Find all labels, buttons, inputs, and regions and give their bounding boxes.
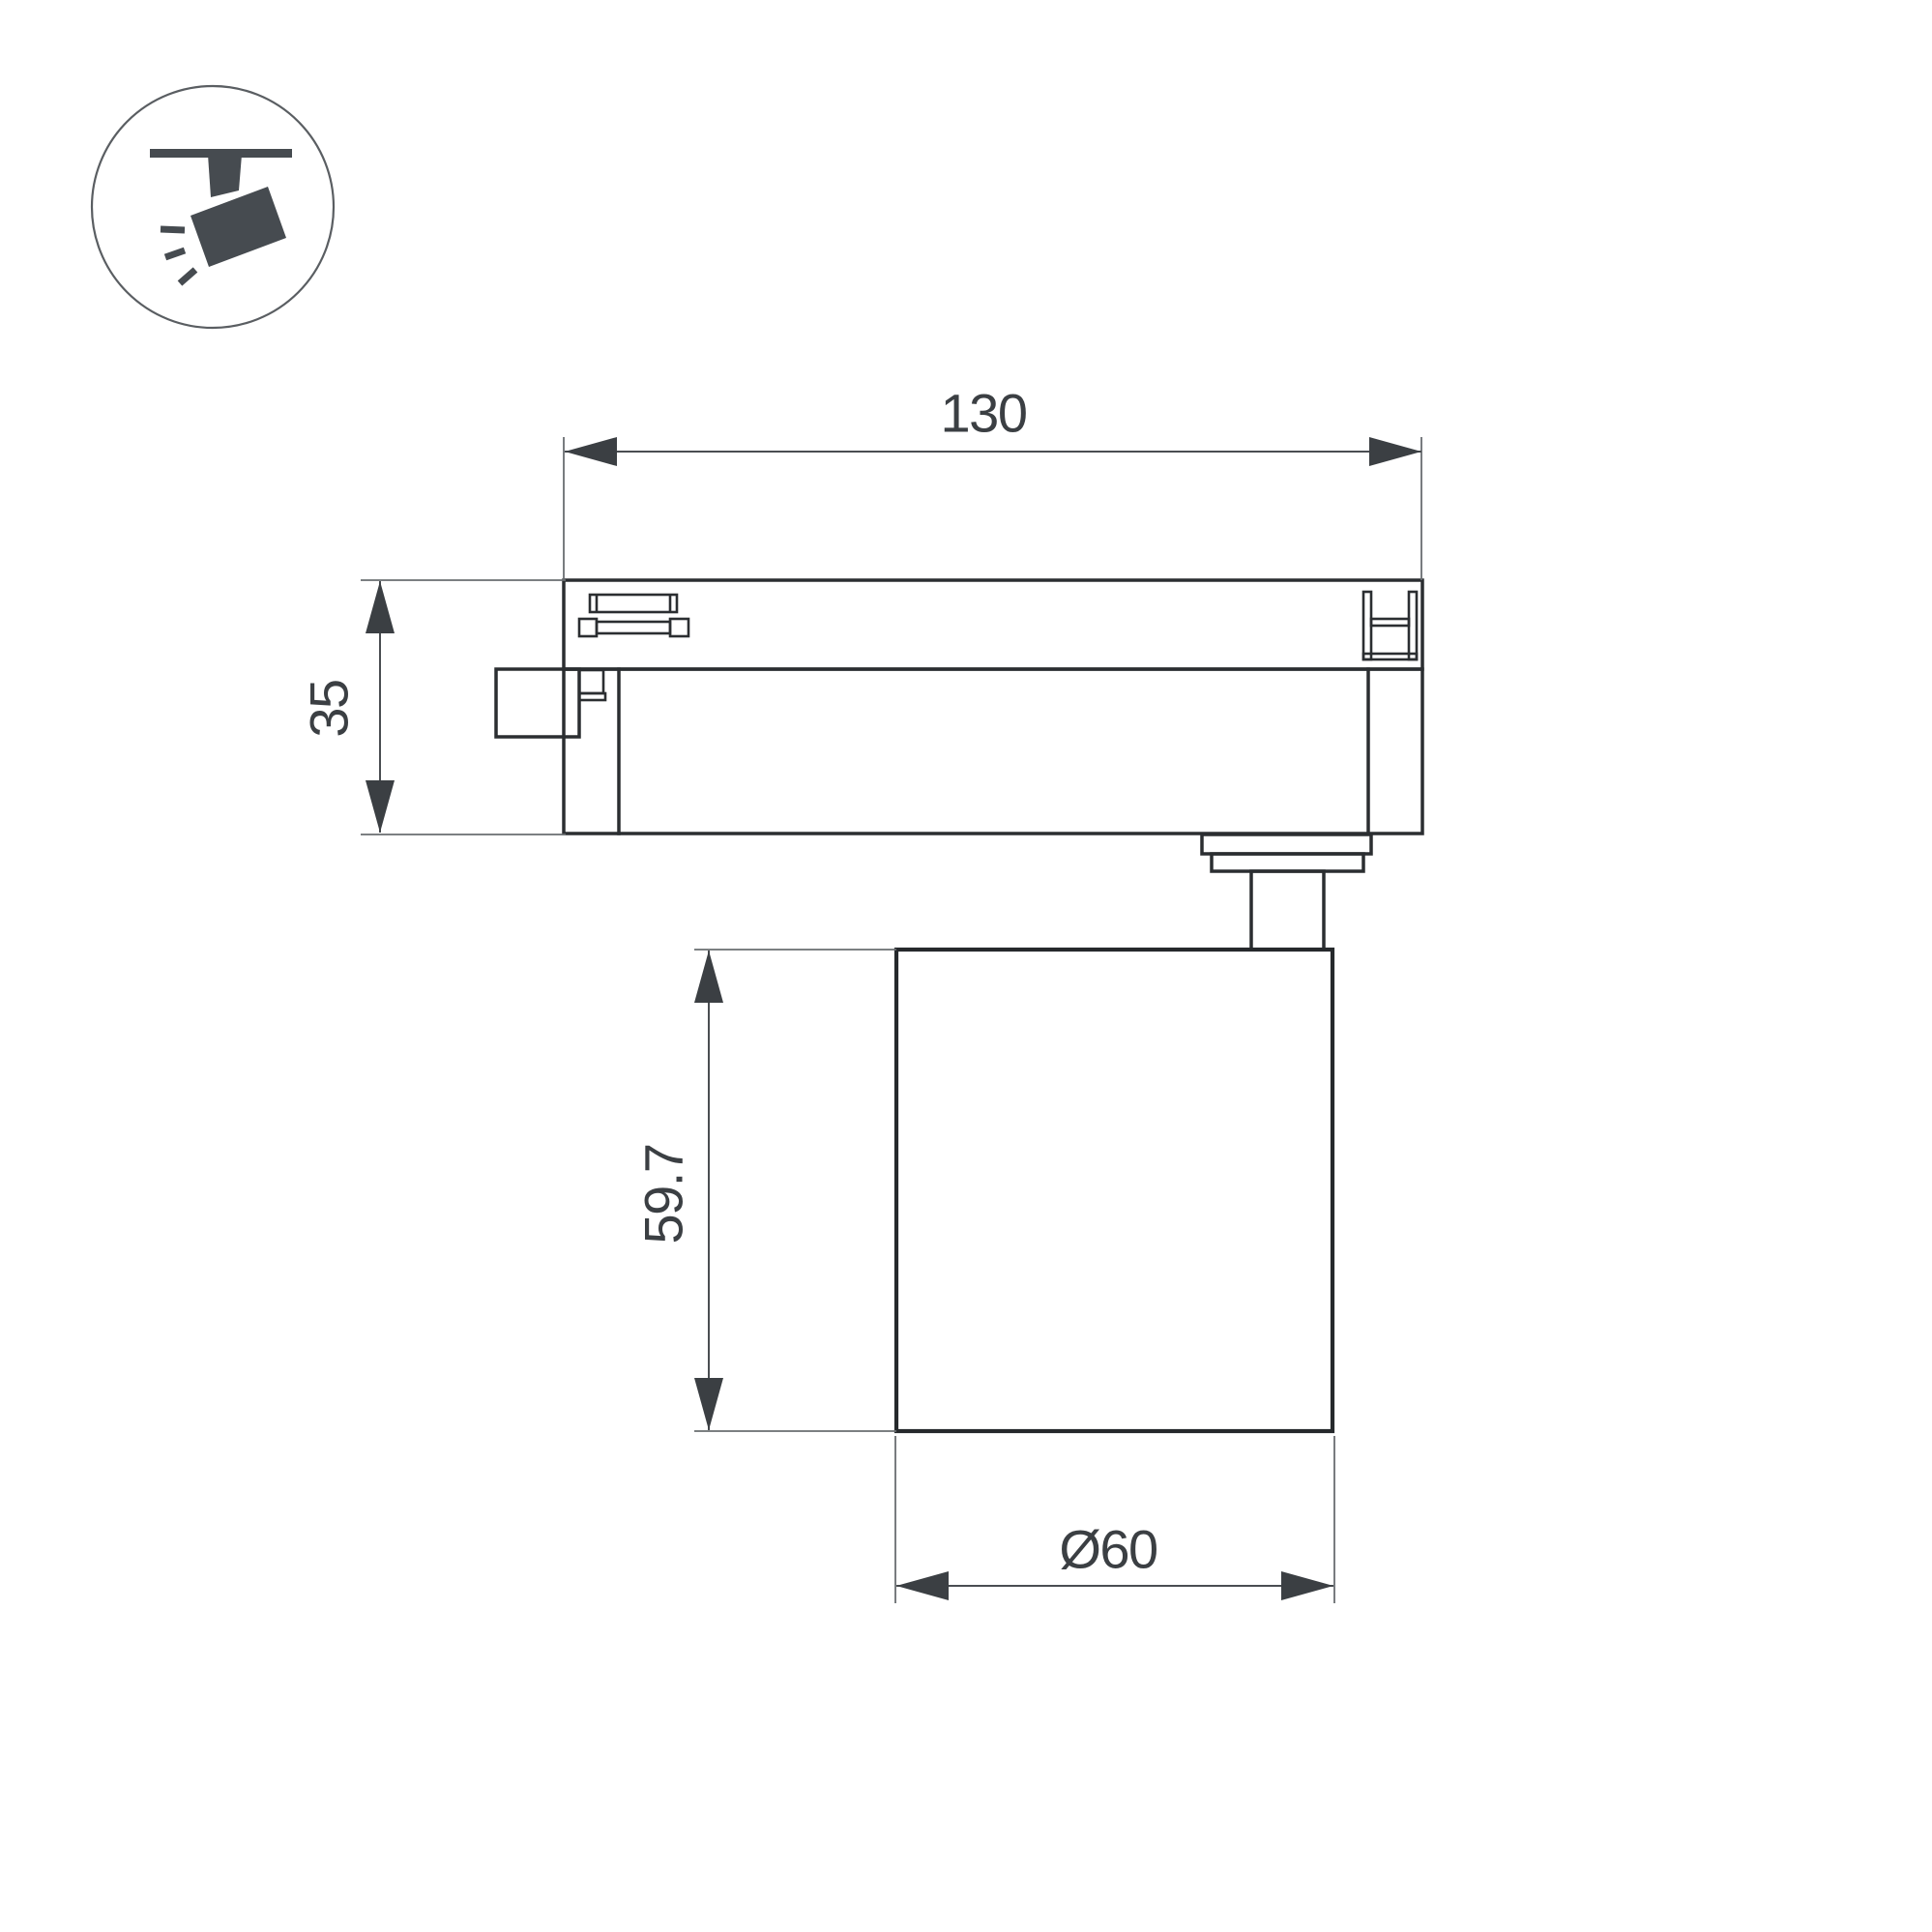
arrowhead-left: [565, 437, 617, 466]
dimension-label-59-7: 59.7: [633, 1145, 694, 1244]
arrowhead-right: [1369, 437, 1421, 466]
lamp-body: [896, 950, 1332, 1431]
track-adapter: [496, 580, 1422, 950]
dimension-d60: Ø60: [895, 1436, 1334, 1603]
dimension-35: 35: [299, 580, 567, 834]
arrowhead-top: [366, 581, 395, 633]
technical-drawing: 130 35 59.7 Ø60: [0, 0, 1932, 1932]
arrowhead-right: [1281, 1571, 1333, 1600]
drawing-canvas: 130 35 59.7 Ø60: [0, 0, 1932, 1932]
adapter-upper-section: [564, 580, 1422, 669]
contact-slot-lower: [579, 619, 688, 636]
dimension-label-d60: Ø60: [1059, 1519, 1156, 1580]
mount-flange-upper: [1202, 834, 1371, 854]
dimension-label-130: 130: [941, 383, 1027, 444]
contact-slot-upper: [590, 595, 677, 612]
track-spotlight-icon: [92, 86, 334, 328]
arrowhead-top: [694, 951, 723, 1003]
arrowhead-left: [896, 1571, 949, 1600]
icon-stem: [208, 155, 242, 197]
latch-lever: [496, 669, 579, 737]
dimension-130: 130: [564, 383, 1421, 581]
adapter-lower-section: [564, 669, 1422, 834]
arrowhead-bottom: [366, 780, 395, 833]
mount-flange-lower: [1212, 854, 1363, 871]
latch-step-bar: [579, 693, 605, 700]
dimension-label-35: 35: [299, 680, 360, 737]
arrowhead-bottom: [694, 1378, 723, 1430]
dimension-59-7: 59.7: [633, 950, 897, 1431]
icon-circle: [92, 86, 334, 328]
latch-step: [579, 670, 603, 693]
mount-stem: [1251, 871, 1324, 950]
locking-bracket: [1363, 592, 1417, 659]
